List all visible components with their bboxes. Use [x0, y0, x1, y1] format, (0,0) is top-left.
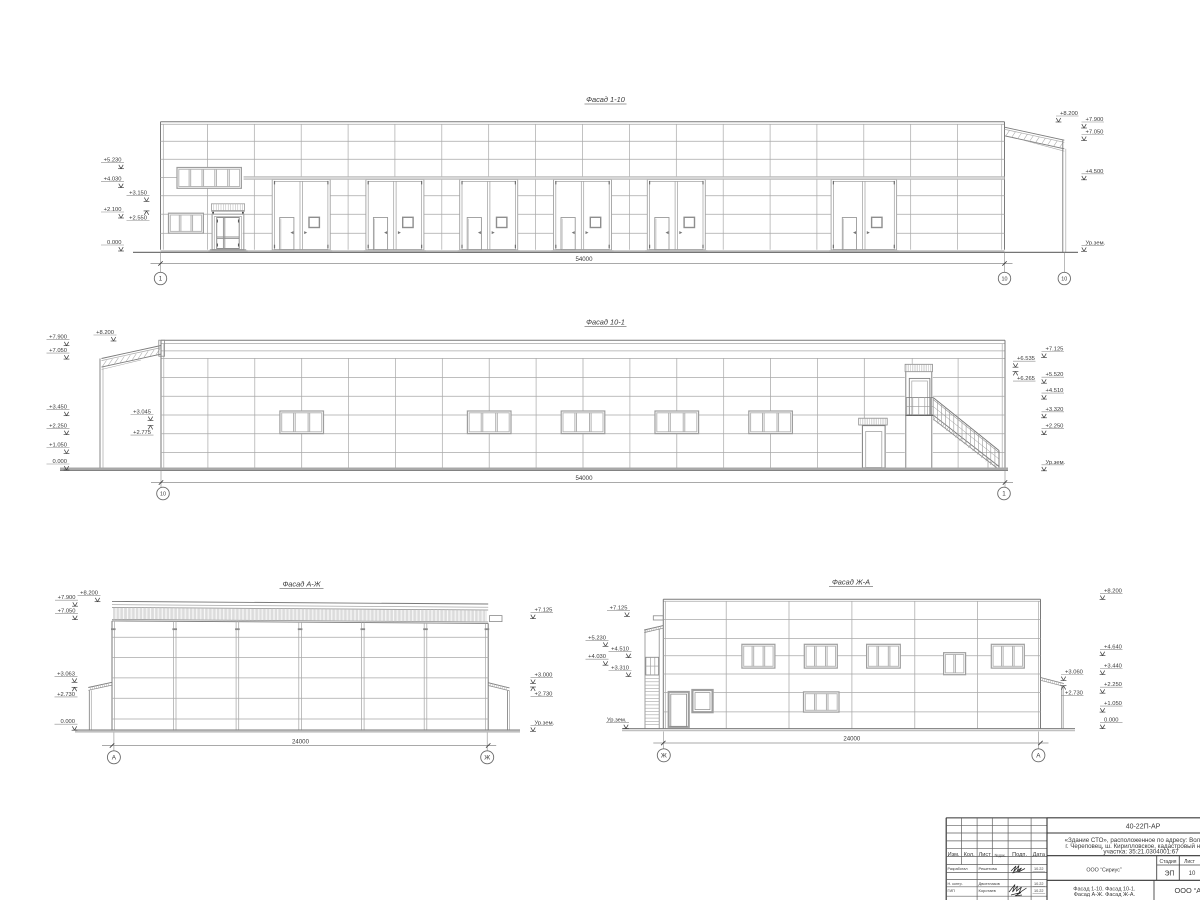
svg-text:участка: 35:21.0304001:67: участка: 35:21.0304001:67 — [1103, 849, 1179, 856]
svg-text:Ж: Ж — [484, 754, 490, 761]
svg-text:ООО “А: ООО “А — [1175, 886, 1200, 895]
svg-text:Фасад А-Ж. Фасад Ж-А.: Фасад А-Ж. Фасад Ж-А. — [1074, 892, 1136, 898]
svg-text:24000: 24000 — [843, 736, 861, 743]
svg-text:1: 1 — [1002, 491, 1006, 498]
svg-text:Кол.: Кол. — [964, 852, 976, 858]
svg-text:Подп.: Подп. — [1012, 852, 1027, 858]
svg-text:10: 10 — [1189, 871, 1196, 877]
svg-text:Ж: Ж — [661, 752, 667, 759]
svg-text:54000: 54000 — [576, 256, 594, 263]
svg-text:1: 1 — [159, 276, 163, 283]
svg-text:Фасад 1-10: Фасад 1-10 — [586, 95, 626, 104]
svg-text:№док.: №док. — [995, 853, 1006, 857]
svg-text:Лист: Лист — [979, 852, 992, 858]
svg-text:Фасад А-Ж: Фасад А-Ж — [282, 580, 321, 589]
svg-text:Изм.: Изм. — [948, 852, 960, 858]
svg-text:ЭП: ЭП — [1164, 870, 1174, 877]
svg-text:10: 10 — [1002, 277, 1008, 283]
svg-text:ГИП: ГИП — [948, 889, 956, 893]
svg-text:Разработал: Разработал — [948, 867, 968, 871]
svg-text:Н. контр.: Н. контр. — [948, 882, 963, 886]
svg-text:А: А — [112, 754, 117, 761]
svg-text:А: А — [1036, 752, 1041, 759]
svg-text:Стадия: Стадия — [1159, 859, 1176, 865]
svg-text:40-22П-АР: 40-22П-АР — [1126, 823, 1161, 830]
svg-text:Фасад Ж-А: Фасад Ж-А — [832, 578, 870, 587]
svg-text:10: 10 — [160, 492, 166, 498]
svg-text:54000: 54000 — [576, 475, 594, 482]
svg-text:Лист: Лист — [1184, 859, 1196, 865]
svg-text:Решетова: Решетова — [979, 866, 998, 871]
svg-text:ООО “Сириус”: ООО “Сириус” — [1086, 867, 1122, 873]
svg-text:10.22: 10.22 — [1034, 867, 1044, 871]
svg-text:Коротаев: Коротаев — [979, 888, 996, 893]
svg-text:Дата: Дата — [1033, 852, 1046, 858]
svg-text:Фасад 10-1: Фасад 10-1 — [586, 318, 625, 327]
svg-text:10.22: 10.22 — [1034, 882, 1044, 886]
svg-text:Двоеглазов: Двоеглазов — [979, 881, 1000, 886]
svg-text:10: 10 — [1061, 277, 1067, 283]
svg-text:10.22: 10.22 — [1034, 889, 1044, 893]
svg-text:24000: 24000 — [292, 739, 310, 746]
